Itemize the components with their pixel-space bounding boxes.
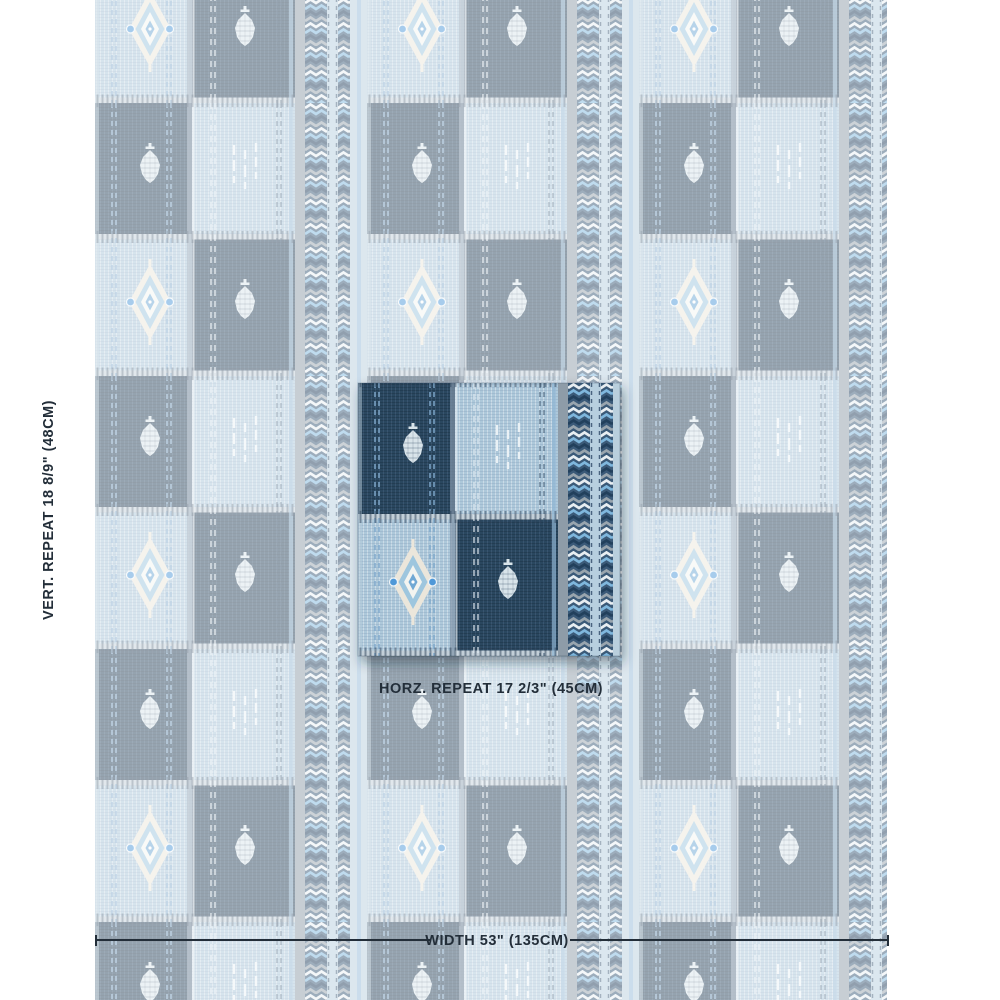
width-label: WIDTH 53" (135CM) [425, 933, 568, 949]
width-measure-tick-left [95, 935, 97, 946]
fabric-product-image: VERT. REPEAT 18 8/9" (48CM) HORZ. REPEAT… [0, 0, 1000, 1000]
fabric-swatch-sample [358, 383, 620, 656]
horizontal-repeat-label: HORZ. REPEAT 17 2/3" (45CM) [379, 681, 603, 697]
width-measure-tick-right [887, 935, 889, 946]
fabric-pattern-svg [0, 0, 1000, 1000]
width-measure-line-left [95, 939, 430, 941]
width-measure-line-right [570, 939, 889, 941]
vertical-repeat-label: VERT. REPEAT 18 8/9" (48CM) [41, 400, 57, 620]
